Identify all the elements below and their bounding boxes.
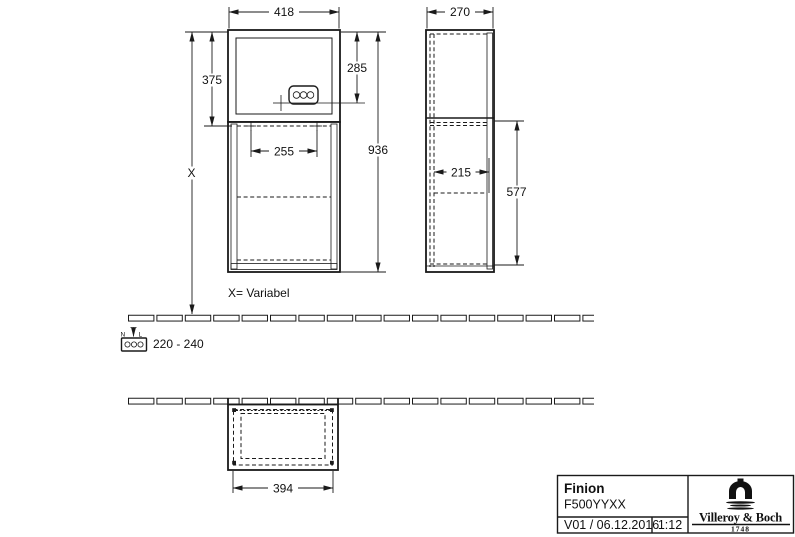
- version-date: V01 / 06.12.2016: [564, 518, 659, 532]
- dim-label-bottom-width: 394: [273, 482, 293, 496]
- power-legend: N L 220 - 240: [121, 328, 205, 352]
- brand-year: 1748: [731, 525, 750, 534]
- dim-label-variable: X: [187, 166, 195, 180]
- side-cabinet-outline: [426, 30, 494, 272]
- title-block: Finion F500YYXX V01 / 06.12.2016 1:12 Vi…: [558, 476, 794, 534]
- brand-name: Villeroy & Boch: [699, 511, 782, 525]
- dim-label-front-width: 418: [274, 5, 294, 19]
- dim-label-total-height: 936: [368, 143, 388, 157]
- dim-front-width: 418: [229, 5, 339, 29]
- wall-section-lower: [128, 398, 594, 406]
- voltage-range: 220 - 240: [153, 337, 204, 351]
- dim-variable-height: X: [185, 32, 198, 314]
- dim-bottom-width: 394: [233, 471, 333, 496]
- side-view: [426, 30, 494, 272]
- dim-label-inner-depth: 215: [451, 166, 471, 180]
- bottom-cabinet-outline: [228, 405, 338, 471]
- dim-label-upper-height: 375: [202, 73, 222, 87]
- product-code: F500YYXX: [564, 498, 627, 512]
- power-socket-icon: N L: [121, 328, 147, 352]
- bottom-view: [228, 398, 338, 470]
- variable-note: X= Variabel: [228, 286, 289, 300]
- socket-icon: [289, 86, 318, 104]
- drawing-canvas: 418 375 X 285 936 255 X= Variabel: [0, 0, 795, 537]
- dim-label-socket-height: 285: [347, 61, 367, 75]
- dim-side-lower-height: 577: [494, 121, 531, 265]
- wall-section-upper: [128, 315, 594, 323]
- technical-drawing-page: 418 375 X 285 936 255 X= Variabel: [0, 0, 795, 537]
- dim-label-depth: 270: [450, 5, 470, 19]
- dim-label-inner-width: 255: [274, 145, 294, 159]
- drawing-scale: 1:12: [658, 518, 682, 532]
- dim-label-lower-height: 577: [506, 185, 526, 199]
- product-name: Finion: [564, 481, 605, 496]
- dim-side-depth: 270: [427, 5, 493, 29]
